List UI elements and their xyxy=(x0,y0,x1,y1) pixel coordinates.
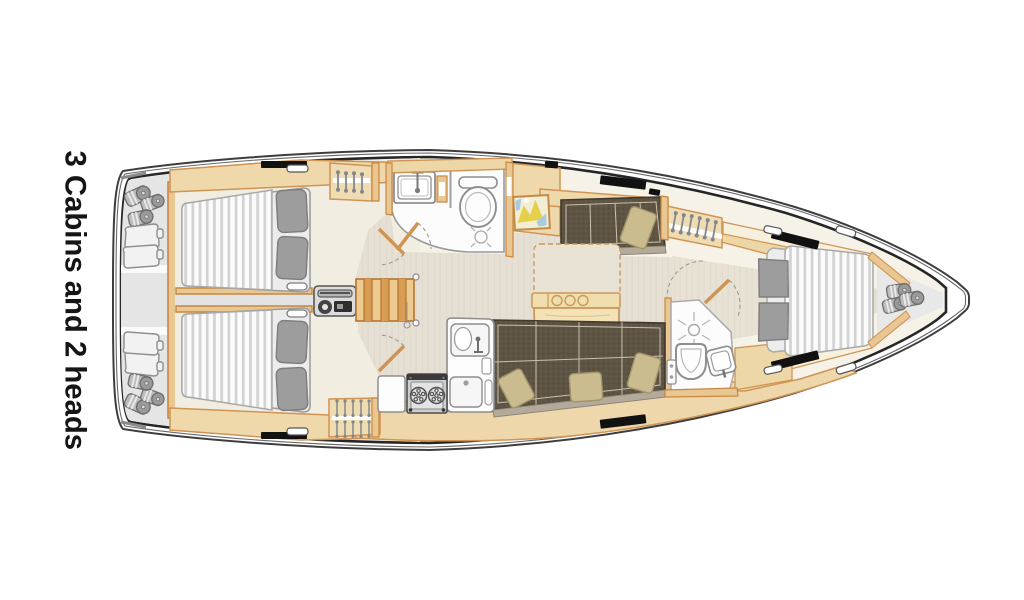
svg-text:3 Cabins and 2 heads: 3 Cabins and 2 heads xyxy=(59,151,92,451)
